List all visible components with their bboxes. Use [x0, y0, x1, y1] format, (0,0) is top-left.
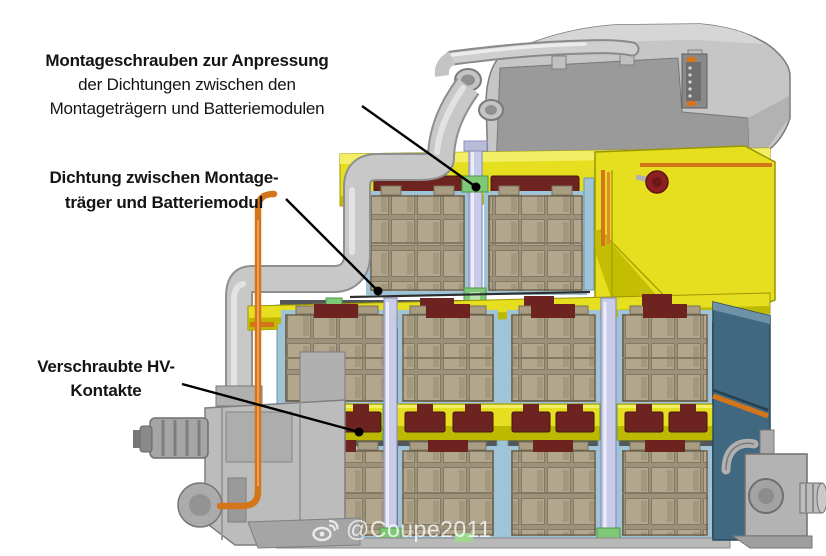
- weibo-icon: [312, 518, 339, 542]
- clamping-screw-right: [597, 298, 620, 542]
- side-panel-right: [713, 302, 826, 548]
- housing-connector-detail: [682, 54, 707, 108]
- left-pipe-connector: [133, 418, 208, 458]
- battery-module-row3-c: [509, 440, 598, 538]
- module-edge-trim: [584, 178, 594, 290]
- callout-dot-hv-kontakte: [355, 428, 364, 437]
- battery-module-row2-d: [620, 304, 710, 404]
- callout-line-bold: Montageschrauben zur Anpressung: [22, 49, 352, 73]
- callout-montageschrauben: Montageschrauben zur Anpressung der Dich…: [22, 49, 352, 121]
- callout-dichtung: Dichtung zwischen Montage- träger und Ba…: [18, 165, 310, 215]
- callout-dot-dichtung: [374, 287, 383, 296]
- callout-line-bold: Kontakte: [6, 379, 206, 403]
- callout-line: Montageträgern und Batteriemodulen: [22, 97, 352, 121]
- callout-hv-kontakte: Verschraubte HV- Kontakte: [6, 355, 206, 403]
- callout-line-bold: Verschraubte HV-: [6, 355, 206, 379]
- figure-canvas: Montageschrauben zur Anpressung der Dich…: [0, 0, 826, 556]
- cover-seal-orange-horizontal: [640, 163, 772, 167]
- callout-line-bold: träger und Batteriemodul: [18, 190, 310, 215]
- battery-module-row1-b: [486, 186, 585, 293]
- callout-dot-montageschrauben: [472, 183, 481, 192]
- watermark: @Coupe2011: [312, 516, 492, 543]
- cover-seal-orange-vertical: [601, 170, 605, 246]
- callout-line-bold: Dichtung zwischen Montage-: [18, 165, 310, 190]
- battery-module-row1-a: [368, 186, 467, 293]
- battery-module-row2-b: [400, 304, 496, 404]
- battery-module-row3-d: [620, 440, 710, 538]
- battery-module-row2-c: [509, 304, 598, 404]
- callout-line: der Dichtungen zwischen den: [22, 73, 352, 97]
- watermark-text: @Coupe2011: [346, 516, 492, 543]
- yellow-cover-right: [595, 146, 775, 318]
